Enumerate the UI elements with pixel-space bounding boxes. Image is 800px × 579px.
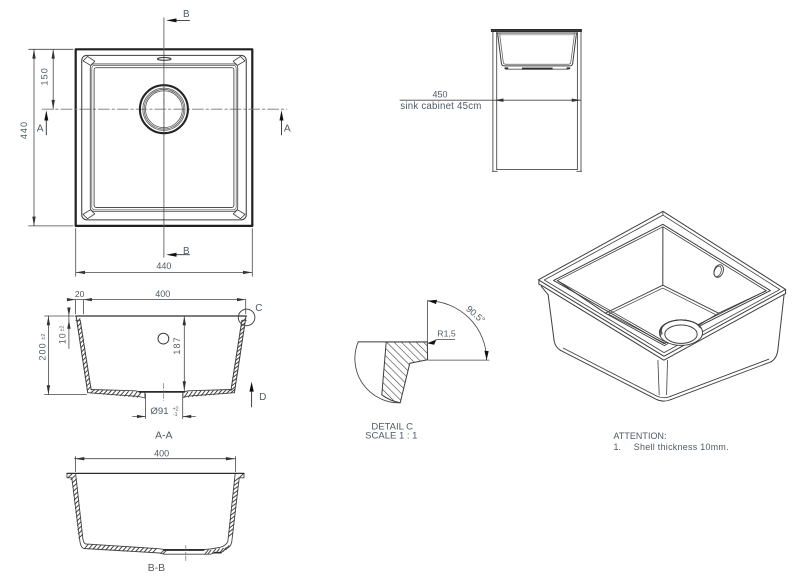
svg-text:±2: ±2 xyxy=(41,334,47,340)
svg-text:B: B xyxy=(183,9,190,20)
svg-text:450: 450 xyxy=(432,89,447,99)
svg-text:R1,5: R1,5 xyxy=(437,328,456,338)
svg-text:A-A: A-A xyxy=(155,431,172,442)
svg-text:1.: 1. xyxy=(614,442,621,452)
svg-text:C: C xyxy=(255,303,262,314)
svg-text:ATTENTION:: ATTENTION: xyxy=(614,431,667,441)
svg-text:A: A xyxy=(37,123,44,134)
svg-text:A: A xyxy=(284,123,291,134)
svg-text:10: 10 xyxy=(57,332,67,344)
svg-text:B-B: B-B xyxy=(148,563,165,574)
svg-text:90.5°: 90.5° xyxy=(464,304,487,326)
svg-text:440: 440 xyxy=(19,121,29,139)
svg-text:400: 400 xyxy=(155,289,170,299)
svg-text:D: D xyxy=(259,392,266,403)
svg-text:20: 20 xyxy=(75,289,85,299)
svg-text:SCALE 1 : 1: SCALE 1 : 1 xyxy=(365,431,417,442)
svg-text:187: 187 xyxy=(172,336,182,354)
svg-text:-1: -1 xyxy=(173,412,178,418)
svg-text:440: 440 xyxy=(156,261,171,271)
svg-text:±2: ±2 xyxy=(60,326,66,332)
svg-text:400: 400 xyxy=(154,449,169,459)
svg-text:sink cabinet 45cm: sink cabinet 45cm xyxy=(400,101,481,112)
svg-text:B: B xyxy=(183,246,190,257)
svg-text:150: 150 xyxy=(40,67,50,85)
svg-text:200: 200 xyxy=(38,342,48,360)
svg-text:Shell thickness 10mm.: Shell thickness 10mm. xyxy=(634,442,729,452)
svg-text:Ø91: Ø91 xyxy=(150,406,168,417)
